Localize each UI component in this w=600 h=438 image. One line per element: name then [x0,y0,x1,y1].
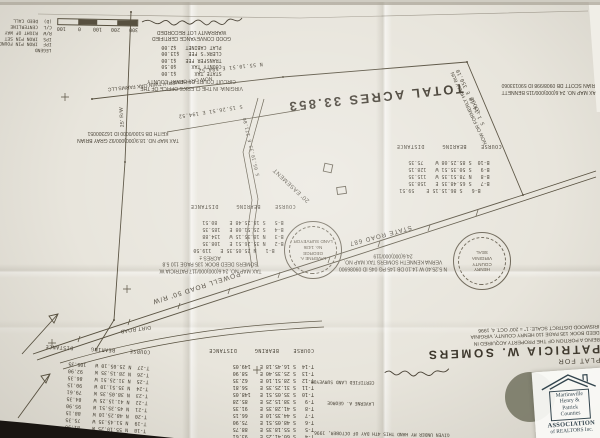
plat-paper: VIRGINIA: IN THE CLERK'S OFFICE OF THE C… [0,2,600,438]
watermark-word4: Counties [553,410,587,419]
watermark-wordbox: Martinsville Henry & Patrick Counties [549,389,591,421]
paper-top-edge [0,2,600,5]
house-roof-icon [539,370,598,392]
realtors-watermark: Martinsville Henry & Patrick Counties AS… [532,368,600,438]
photo-lighting-overlay [0,2,600,438]
photo-of-survey-plat: VIRGINIA: IN THE CLERK'S OFFICE OF THE C… [0,0,600,438]
